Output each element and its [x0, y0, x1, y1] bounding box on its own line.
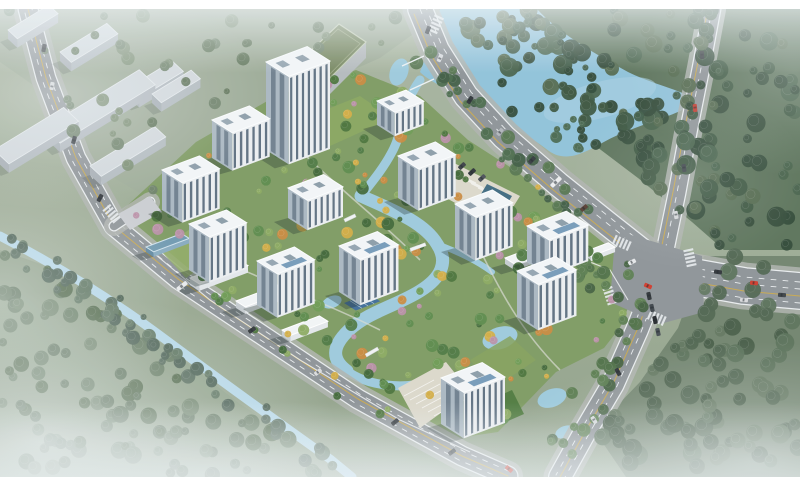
rendering-stage — [0, 0, 800, 485]
bottom-margin — [0, 477, 800, 485]
top-margin — [0, 0, 800, 9]
scene — [0, 0, 800, 485]
haze — [0, 0, 800, 485]
aerial-masterplan-rendering — [0, 0, 800, 485]
